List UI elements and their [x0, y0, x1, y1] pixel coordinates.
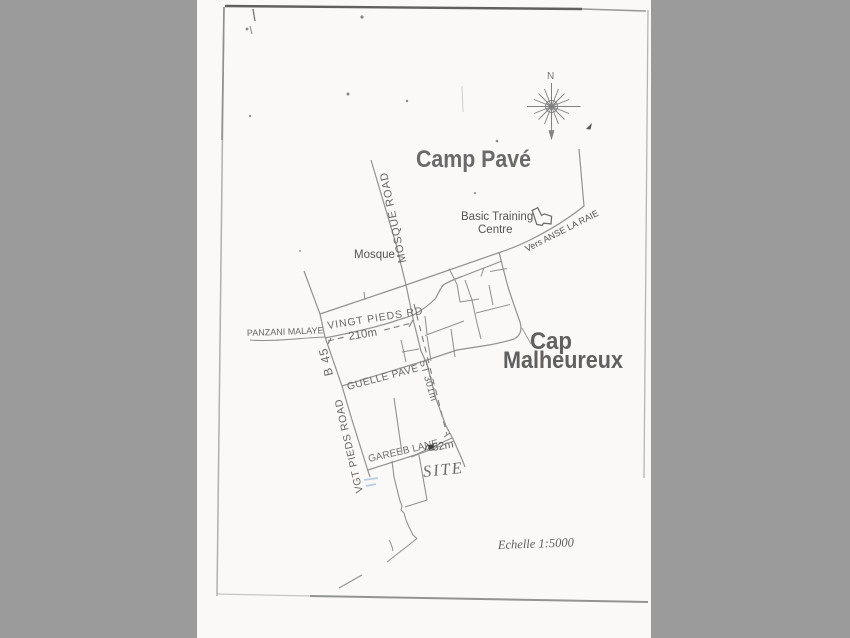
svg-text:Centre: Centre: [478, 224, 513, 236]
svg-text:Camp Pavé: Camp Pavé: [416, 146, 531, 173]
svg-text:Basic Training: Basic Training: [461, 211, 533, 223]
svg-text:Malheureux: Malheureux: [503, 347, 623, 374]
svg-text:Echelle 1:5000: Echelle 1:5000: [497, 535, 575, 552]
svg-text:N: N: [547, 71, 554, 82]
svg-text:Mosque: Mosque: [354, 249, 395, 261]
